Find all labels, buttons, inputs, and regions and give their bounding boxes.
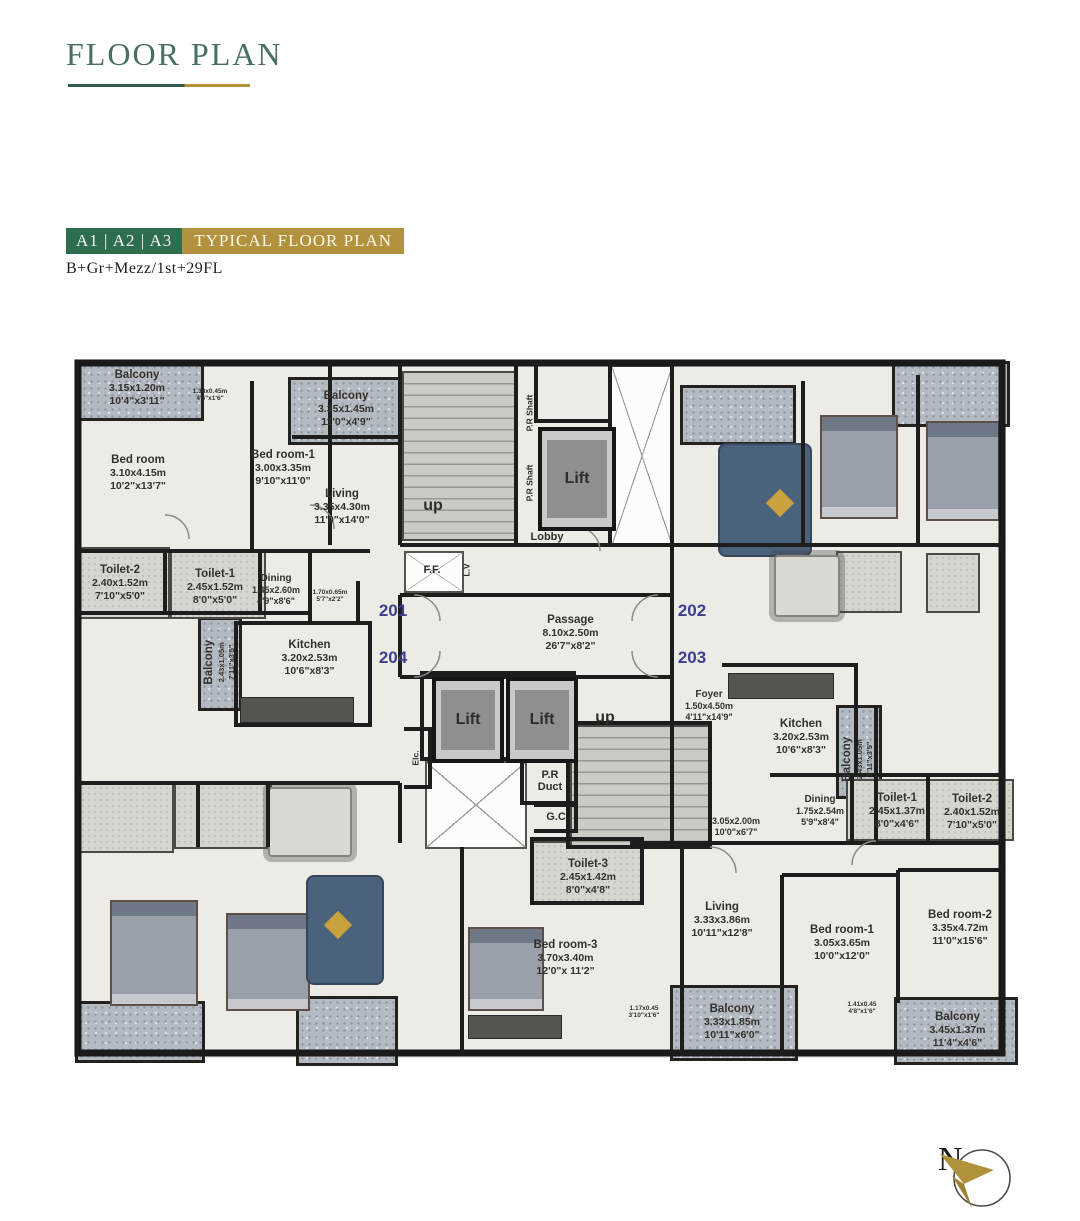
room-dimension: 11'0"x15'6" [932,935,987,948]
unit-number-201: 201 [372,598,414,624]
room-dimension: 3.00x3.35m [255,462,311,475]
room-dimension: 10'6"x8'3" [776,744,826,757]
room-dimension: 2.40x1.52m [92,577,148,590]
service-label-p-r-shaft: P.R Shaft [518,383,540,443]
room-label-bed-room-3: Bed room-33.70x3.40m12'0"x 11'2" [488,927,643,989]
lift-label: Lift [565,470,590,488]
room-name: Passage [547,613,594,627]
unit-number-203: 203 [671,645,713,671]
room-dimension: 7'10"x5'0" [95,590,145,603]
room-dimension: 10'0"x6'7" [715,827,758,838]
room-label-bed-room: Bed room3.10x4.15m10'2"x13'7" [82,443,194,503]
room-dimension: 3'10"x1'6" [629,1012,660,1019]
room-dimension: 3.05x2.00m [712,816,760,827]
room-dimension: 3.45x1.37m [929,1024,985,1037]
room-name: Foyer [695,689,722,702]
room-dimension: 8.10x2.50m [542,627,598,640]
room-dimension: 12'0"x 11'2" [536,965,594,978]
room-dimension: 4'6"x1'6" [196,395,223,402]
room-label-toilet-1: Toilet-12.45x1.37m8'0"x4'6" [855,785,939,837]
floor-plan: LiftLiftLiftBalcony3.15x1.20m10'4"x3'11"… [70,355,1010,1062]
room-label-3-05x2-00m: 3.05x2.00m10'0"x6'7" [692,807,780,847]
room-label-dining: Dining1.75x2.54m5'9"x8'4" [780,785,860,837]
unit-badge: A1 | A2 | A3 [66,228,182,254]
room-name: Balcony [202,640,217,685]
room-dimension: 3.35x1.45m [318,403,374,416]
room-name: Balcony [115,368,160,382]
room-label-1-70x0-65m: 1.70x0.65m5'7"x2'2" [300,581,360,611]
service-label-f-f: F.F. [406,552,458,588]
service-label-lobby: Lobby [518,527,576,547]
room-dimension: 1.38x0.45m [193,388,228,395]
room-label-1-41x0-45: 1.41x0.454'8"x1'6" [838,997,886,1019]
room-name: Balcony [840,737,855,782]
room-label-1-38x0-45m: 1.38x0.45m4'6"x1'6" [182,381,238,409]
room-dimension: 2.43x1.05m [855,737,865,782]
room-label-1-17x0-45: 1.17x0.453'10"x1'6" [620,1001,668,1023]
room-name: Bed room-3 [534,938,598,952]
room-name: Kitchen [780,717,822,731]
room-dimension: 10'11"x12'8" [691,927,752,940]
room-dimension: 2.40x1.52m [944,806,1000,819]
room-dimension: 10'2"x13'7" [110,480,166,493]
page-title: FLOOR PLAN [66,36,282,73]
room-dimension: 3.05x3.65m [814,937,870,950]
room-dimension: 2.45x1.52m [187,581,243,594]
room-dimension: 26'7"x8'2" [546,640,596,653]
unit-number-202: 202 [671,598,713,624]
room-dimension: 4'11"x14'9" [685,712,732,723]
room-dimension: 11'0"x4'9" [321,416,370,429]
service-label-up: up [410,493,456,519]
room-dimension: 2.43x1.05m [217,640,227,685]
room-name: Bed room-2 [928,908,992,922]
room-dimension: 3.10x4.15m [110,467,166,480]
room-dimension: 1.75x2.54m [796,806,844,817]
room-dimension: 10'6"x8'3" [285,665,335,678]
room-dimension: 4'9"x8'6" [257,596,295,607]
room-dimension: 1.17x0.45 [630,1005,659,1012]
room-label-bed-room-1: Bed room-13.05x3.65m10'0"x12'0" [785,913,899,973]
room-name: Toilet-1 [877,791,917,805]
room-dimension: 1.70x0.65m [313,589,348,596]
room-label-bed-room-2: Bed room-23.35x4.72m11'0"x15'6" [903,898,1017,958]
unit-number-204: 204 [372,645,414,671]
room-name: Balcony [935,1010,980,1024]
room-dimension: 11'4"x4'6" [933,1037,982,1050]
room-name: Toilet-2 [952,792,992,806]
room-name: Balcony [324,389,369,403]
room-dimension: 11'0"x14'0" [314,514,369,527]
room-dimension: 4'8"x1'6" [848,1008,875,1015]
floor-plan-page: FLOOR PLAN A1 | A2 | A3 TYPICAL FLOOR PL… [0,0,1080,1221]
room-name: Toilet-2 [100,563,140,577]
room-dimension: 3.20x2.53m [773,731,829,744]
room-label-passage: Passage8.10x2.50m26'7"x8'2" [488,605,653,661]
room-dimension: 8'0"x4'8" [566,884,610,897]
service-label-text: P.R Shaft [524,465,534,502]
room-dimension: 2.45x1.42m [560,871,616,884]
title-underline [68,84,250,87]
room-name: Bed room-1 [251,448,315,462]
room-label-dining: Dining1.45x2.60m4'9"x8'6" [244,567,308,613]
room-dimension: 7'11"x3'5" [226,640,236,685]
room-dimension: 2.45x1.37m [869,805,925,818]
room-dimension: 8'0"x4'6" [875,818,919,831]
room-name: Living [705,900,739,914]
lift: Lift [506,677,578,763]
room-label-toilet-2: Toilet-22.40x1.52m7'10"x5'0" [932,785,1012,839]
service-label-text: P.R Shaft [524,395,534,432]
lift-label: Lift [530,711,555,729]
plan-type-badge: TYPICAL FLOOR PLAN [182,228,404,254]
room-name: Balcony [710,1002,755,1016]
room-dimension: 3.70x3.40m [537,952,593,965]
room-dimension: 3.35x4.30m [314,501,370,514]
room-label-living: Living3.33x3.86m10'11"x12'8" [668,890,776,950]
room-dimension: 5'9"x8'4" [801,817,839,828]
lift: Lift [432,677,504,763]
room-dimension: 10'11"x6'0" [704,1029,759,1042]
room-dimension: 1.45x2.60m [252,585,300,596]
room-dimension: 10'0"x12'0" [814,950,870,963]
service-label-p-r-duct: P.R Duct [524,759,576,803]
service-label-elc: Elc. [404,731,428,785]
service-label-p-r-shaft: P.R Shaft [518,451,540,515]
room-dimension: 3.35x4.72m [932,922,988,935]
service-label-up: up [582,705,628,731]
plan-badges: A1 | A2 | A3 TYPICAL FLOOR PLAN [66,228,404,254]
service-label-text: L.V [462,563,472,576]
room-name: Kitchen [288,638,330,652]
room-label-living: Living3.35x4.30m11'0"x14'0" [288,477,396,537]
room-dimension: 3.15x1.20m [109,382,165,395]
room-label-balcony: Balcony3.15x1.20m10'4"x3'11" [78,363,196,413]
room-dimension: 3.33x3.86m [694,914,750,927]
room-dimension: 7'10"x5'0" [947,819,997,832]
room-label-toilet-3: Toilet-32.45x1.42m8'0"x4'8" [538,851,638,903]
service-label-g-c: G.C [536,805,576,829]
room-name: Bed room-1 [810,923,874,937]
room-label-balcony: Balcony3.33x1.85m10'11"x6'0" [676,993,788,1051]
room-name: Dining [260,573,291,586]
room-name: Living [325,487,359,501]
room-dimension: 3.33x1.85m [704,1016,760,1029]
room-name: Dining [804,794,835,807]
room-dimension: 1.50x4.50m [685,701,733,712]
lift-label: Lift [456,711,481,729]
room-name: Toilet-3 [568,857,608,871]
room-dimension: 3.20x2.53m [281,652,337,665]
room-dimension: 8'0"x5'0" [193,594,237,607]
lift: Lift [538,427,616,531]
service-label-l-v: L.V [458,553,476,587]
north-compass: N [890,1120,1060,1220]
room-dimension: 10'4"x3'11" [109,395,164,408]
room-label-balcony: Balcony3.45x1.37m11'4"x4'6" [900,1003,1015,1057]
room-label-foyer: Foyer1.50x4.50m4'11"x14'9" [676,685,742,727]
room-label-kitchen: Kitchen3.20x2.53m10'6"x8'3" [252,627,367,689]
room-label-balcony: Balcony3.35x1.45m11'0"x4'9" [292,383,400,435]
room-dimension: 1.41x0.45 [848,1001,877,1008]
room-dimension: 5'7"x2'2" [316,596,343,603]
room-name: Bed room [111,453,165,467]
room-dimension: 7'11"x3'5" [864,737,874,782]
room-label-toilet-2: Toilet-22.40x1.52m7'10"x5'0" [76,555,164,611]
floors-label: B+Gr+Mezz/1st+29FL [66,260,223,278]
service-label-text: Elc. [411,750,421,765]
room-name: Toilet-1 [195,567,235,581]
room-label-balcony: Balcony2.43x1.05m7'11"x3'5" [202,621,236,703]
